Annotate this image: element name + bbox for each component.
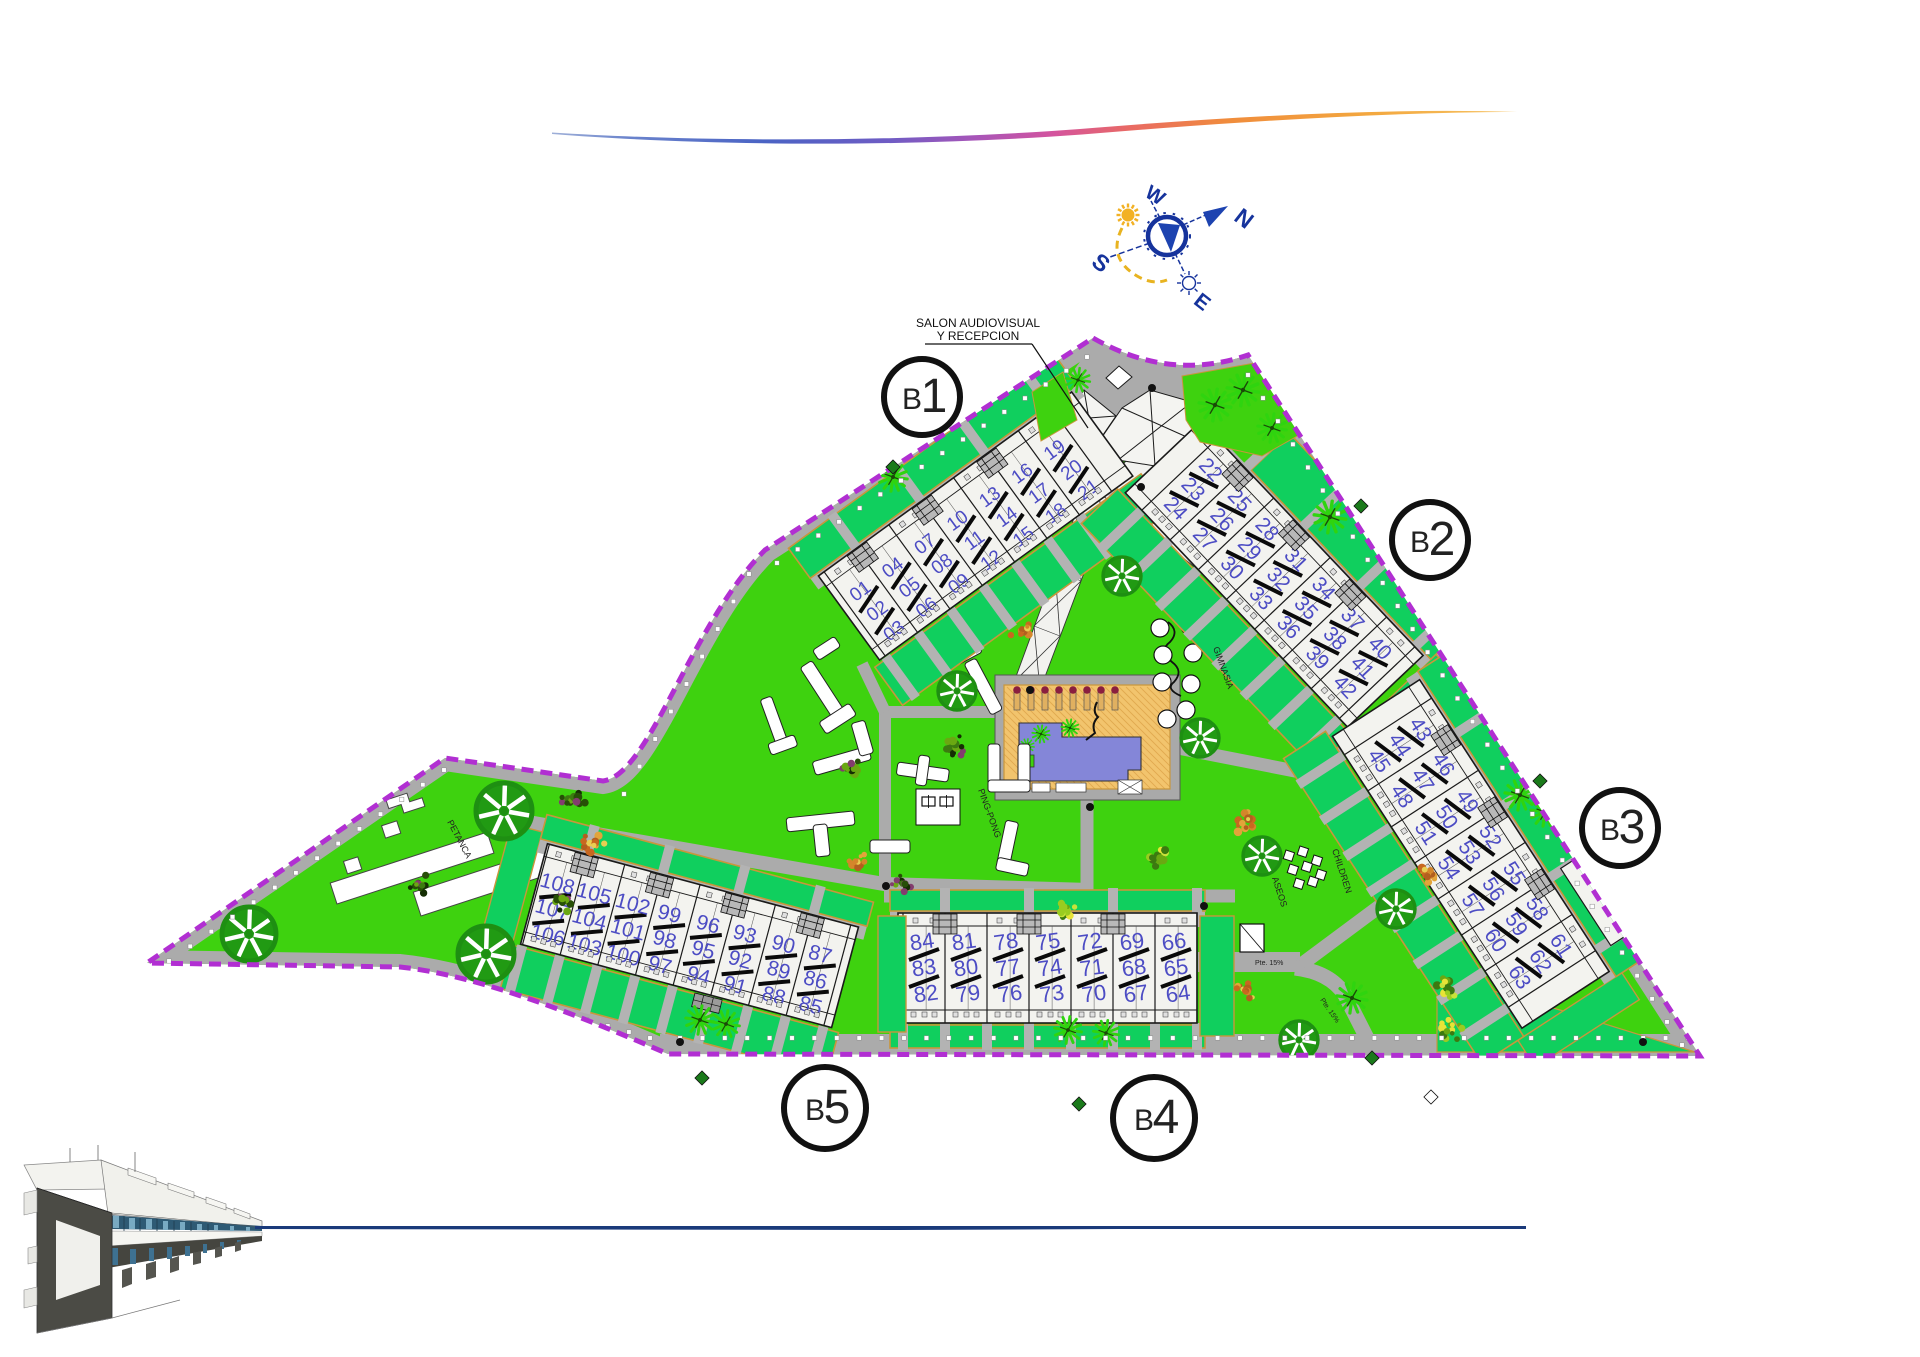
svg-text:67: 67 (1122, 979, 1150, 1007)
svg-text:82: 82 (912, 979, 940, 1007)
svg-text:B: B (1600, 814, 1620, 847)
svg-text:5: 5 (824, 1081, 851, 1134)
svg-text:SALON AUDIOVISUAL: SALON AUDIOVISUAL (916, 316, 1040, 330)
svg-text:2: 2 (1429, 513, 1456, 566)
svg-text:71: 71 (1078, 953, 1106, 981)
svg-text:72: 72 (1076, 927, 1104, 955)
svg-text:79: 79 (954, 979, 982, 1007)
svg-text:73: 73 (1038, 979, 1066, 1007)
svg-text:77: 77 (994, 953, 1022, 981)
svg-text:B: B (1410, 526, 1430, 559)
svg-text:B: B (1134, 1104, 1154, 1137)
svg-text:4: 4 (1153, 1091, 1180, 1144)
svg-text:B: B (902, 383, 922, 416)
svg-text:80: 80 (952, 953, 980, 981)
svg-text:68: 68 (1120, 953, 1148, 981)
svg-text:74: 74 (1036, 953, 1064, 981)
svg-text:65: 65 (1162, 953, 1190, 981)
svg-text:Pte. 15%: Pte. 15% (1255, 960, 1283, 967)
svg-text:3: 3 (1619, 801, 1646, 854)
svg-text:83: 83 (910, 953, 938, 981)
svg-text:1: 1 (921, 370, 948, 423)
svg-text:B: B (805, 1094, 825, 1127)
svg-text:84: 84 (908, 927, 936, 955)
svg-text:76: 76 (996, 979, 1024, 1007)
svg-text:70: 70 (1080, 979, 1108, 1007)
svg-text:Y RECEPCION: Y RECEPCION (937, 329, 1019, 343)
svg-text:78: 78 (992, 927, 1020, 955)
svg-text:64: 64 (1164, 979, 1192, 1007)
svg-text:66: 66 (1160, 927, 1188, 955)
